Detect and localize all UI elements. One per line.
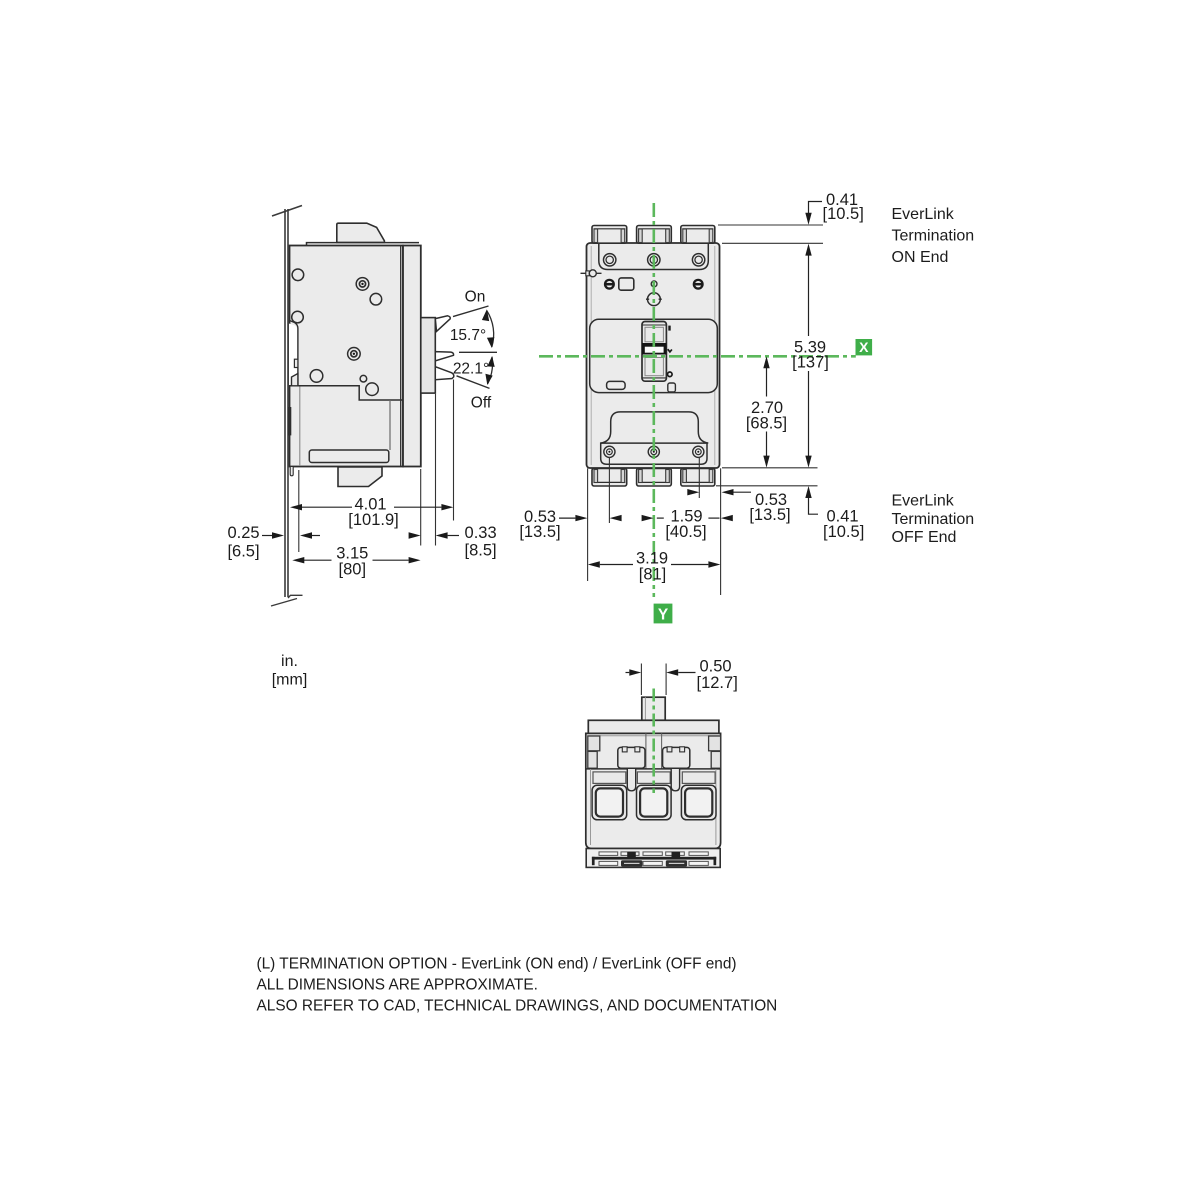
- svg-text:0.50: 0.50: [700, 657, 732, 675]
- svg-text:[101.9]: [101.9]: [348, 511, 398, 529]
- svg-text:EverLink: EverLink: [892, 493, 955, 510]
- svg-text:[40.5]: [40.5]: [665, 523, 706, 541]
- svg-text:[13.5]: [13.5]: [749, 506, 790, 524]
- svg-text:Y: Y: [658, 606, 669, 623]
- svg-text:[137]: [137]: [792, 354, 829, 372]
- svg-text:22.1°: 22.1°: [453, 361, 489, 378]
- svg-text:[8.5]: [8.5]: [465, 541, 497, 559]
- svg-text:15.7°: 15.7°: [450, 327, 486, 344]
- svg-text:[mm]: [mm]: [272, 671, 308, 688]
- svg-text:ON End: ON End: [892, 249, 949, 266]
- svg-text:On: On: [465, 289, 486, 306]
- svg-text:in.: in.: [281, 653, 298, 670]
- svg-text:Off: Off: [471, 395, 492, 412]
- svg-text:[80]: [80]: [339, 561, 367, 579]
- svg-text:[81]: [81]: [639, 565, 667, 583]
- svg-text:Termination: Termination: [892, 511, 975, 528]
- svg-text:[10.5]: [10.5]: [823, 205, 864, 223]
- svg-text:EverLink: EverLink: [892, 206, 955, 223]
- svg-text:[10.5]: [10.5]: [823, 523, 864, 541]
- svg-text:(L) TERMINATION OPTION - EverL: (L) TERMINATION OPTION - EverLink (ON en…: [257, 956, 737, 973]
- svg-text:Termination: Termination: [892, 228, 975, 245]
- svg-text:X: X: [859, 339, 869, 355]
- svg-text:ALL DIMENSIONS ARE APPROXIMATE: ALL DIMENSIONS ARE APPROXIMATE.: [257, 977, 538, 994]
- svg-text:ALSO REFER TO CAD, TECHNICAL D: ALSO REFER TO CAD, TECHNICAL DRAWINGS, A…: [257, 998, 778, 1015]
- svg-text:[12.7]: [12.7]: [697, 674, 738, 692]
- svg-text:[13.5]: [13.5]: [519, 523, 560, 541]
- svg-text:OFF End: OFF End: [892, 529, 957, 546]
- svg-text:[6.5]: [6.5]: [227, 542, 259, 560]
- svg-text:[68.5]: [68.5]: [746, 414, 787, 432]
- svg-text:0.33: 0.33: [465, 524, 497, 542]
- svg-text:0.25: 0.25: [227, 524, 259, 542]
